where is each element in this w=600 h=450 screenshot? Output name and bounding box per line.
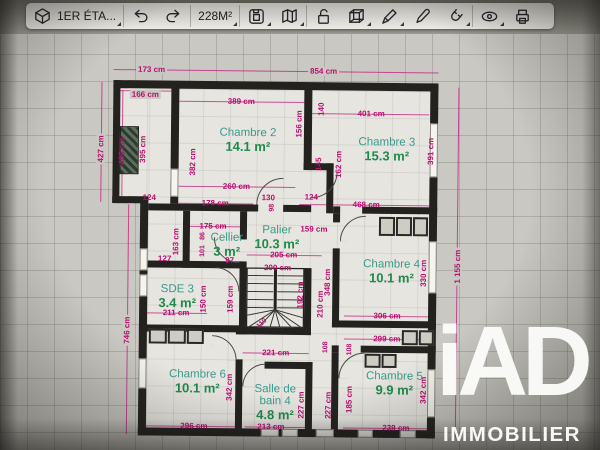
window bbox=[140, 248, 148, 270]
room-label-chambre-2: Chambre 214.1 m² bbox=[219, 127, 276, 155]
dimension-label: 210 cm bbox=[316, 291, 325, 318]
dimension-label: 130 bbox=[262, 193, 275, 202]
dimension-label: 124 bbox=[305, 193, 318, 202]
dimension-label: 166 cm bbox=[130, 90, 161, 99]
room-label-palier: Palier10.3 m² bbox=[254, 224, 299, 251]
dimension-label: 101 bbox=[199, 245, 206, 257]
room-label-chambre-5: Chambre 59.9 m² bbox=[366, 370, 423, 398]
dimension-label: 260 cm bbox=[223, 182, 250, 191]
room-label-salle-de: Salle debain 44.8 m² bbox=[254, 383, 296, 422]
dimension-label: 162 cm bbox=[334, 151, 343, 178]
map-view-button[interactable] bbox=[273, 3, 306, 29]
dimension-label: 205 cm bbox=[270, 250, 297, 259]
undo-button[interactable] bbox=[124, 3, 157, 29]
closet bbox=[379, 217, 395, 236]
save-document-icon bbox=[247, 7, 266, 26]
undo-arrow-icon bbox=[131, 7, 150, 26]
dimension-label: 227 cm bbox=[323, 392, 332, 419]
dimension-label: 391 cm bbox=[426, 138, 435, 165]
magnet-icon bbox=[446, 7, 465, 26]
dimension-label: 746 cm bbox=[122, 315, 131, 346]
dimension-label: 296 cm bbox=[180, 421, 207, 430]
view-3d-button[interactable] bbox=[340, 3, 373, 29]
dimension-label: 1 155 cm bbox=[453, 248, 462, 286]
wall-segment bbox=[305, 362, 313, 436]
dimension-label: 239 cm bbox=[382, 423, 409, 432]
floor-selector-label: 1ER ÉTA... bbox=[57, 9, 116, 23]
dimension-label: 86 bbox=[199, 232, 206, 240]
wall-segment bbox=[283, 205, 311, 212]
closet bbox=[149, 328, 167, 343]
print-button[interactable] bbox=[506, 3, 539, 29]
closet bbox=[419, 330, 434, 345]
dropdown-caret bbox=[233, 22, 237, 26]
room-label-cellier: Cellier3 m² bbox=[210, 232, 243, 259]
wall-segment bbox=[236, 327, 311, 335]
room-label-chambre-6: Chambre 610.1 m² bbox=[169, 368, 226, 396]
redo-button[interactable] bbox=[157, 3, 190, 29]
wall-segment bbox=[304, 88, 313, 170]
closet bbox=[396, 217, 412, 236]
magnet-snap-button[interactable] bbox=[439, 3, 472, 29]
dimension-label: 395 cm bbox=[138, 136, 147, 163]
closet bbox=[365, 354, 381, 368]
dimension-label: 227 cm bbox=[296, 391, 305, 418]
dropdown-caret bbox=[300, 22, 304, 26]
dimension-label: 159 cm bbox=[226, 286, 235, 313]
wall-segment bbox=[333, 213, 340, 222]
dimension-label: 405 cm bbox=[117, 138, 126, 165]
dimension-label: 192 cm bbox=[296, 281, 305, 308]
dimension-label: 124 bbox=[143, 193, 156, 202]
dimension-label: 299 cm bbox=[373, 334, 400, 343]
unlock-button[interactable] bbox=[307, 3, 340, 29]
lock-open-icon bbox=[314, 7, 333, 26]
dimension-label: 178 cm bbox=[202, 198, 229, 207]
room-label-chambre-4: Chambre 410.1 m² bbox=[363, 258, 420, 286]
redo-arrow-icon bbox=[164, 7, 183, 26]
dimension-label: 468 cm bbox=[353, 200, 380, 209]
dropdown-caret bbox=[267, 22, 271, 26]
dimension-label: 185 cm bbox=[345, 386, 354, 413]
dimension-label: 330 cm bbox=[419, 260, 428, 287]
window bbox=[170, 169, 178, 197]
dimension-label: 156 cm bbox=[294, 110, 303, 137]
room-label-sde-3: SDE 33.4 m² bbox=[158, 283, 196, 310]
closet bbox=[402, 330, 418, 345]
dropdown-caret bbox=[117, 22, 121, 26]
window bbox=[427, 369, 436, 417]
dimension-label: 175 cm bbox=[199, 221, 226, 230]
surface-area-label: 228M² bbox=[198, 9, 232, 23]
wall-segment bbox=[235, 359, 243, 435]
dimension-label: 200 cm bbox=[264, 263, 291, 272]
dimension-label: 382 cm bbox=[188, 148, 197, 175]
map-icon bbox=[280, 7, 299, 26]
draw-button[interactable] bbox=[373, 3, 406, 29]
eye-icon bbox=[480, 7, 499, 26]
photo-frame: 1ER ÉTA... 228M² bbox=[0, 0, 600, 450]
wall-segment bbox=[183, 211, 191, 268]
window bbox=[358, 430, 373, 438]
dimension-label: 108 bbox=[322, 341, 329, 353]
floorplan-canvas[interactable]: 173 cm854 cm166 cm389 cm401 cm427 cm405 … bbox=[0, 0, 600, 450]
dimension-label: 389 cm bbox=[228, 97, 255, 106]
dimension-label: 306 cm bbox=[373, 311, 400, 320]
cube-3d-icon bbox=[347, 7, 366, 26]
dimension-label: 140 bbox=[317, 102, 326, 115]
closet bbox=[413, 217, 428, 236]
wall-segment bbox=[304, 268, 312, 335]
window bbox=[138, 358, 146, 388]
room-label-chambre-3: Chambre 315.3 m² bbox=[358, 136, 415, 164]
dropdown-caret bbox=[500, 22, 504, 26]
dimension-label: 163 cm bbox=[171, 228, 180, 255]
dimension-label: 145 bbox=[314, 157, 323, 170]
dimension-label: 98 bbox=[269, 204, 276, 212]
wall-segment bbox=[361, 346, 436, 354]
floor-selector-button[interactable]: 1ER ÉTA... bbox=[26, 3, 123, 29]
wall-segment bbox=[332, 248, 340, 327]
wall-segment bbox=[332, 320, 436, 328]
visibility-button[interactable] bbox=[473, 3, 506, 29]
closet bbox=[168, 329, 186, 344]
dimension-label: 401 cm bbox=[358, 109, 385, 118]
printer-icon bbox=[513, 7, 532, 26]
dimension-label: 173 cm bbox=[136, 65, 167, 74]
dimension-label: 108 bbox=[346, 344, 353, 356]
dropdown-caret bbox=[367, 22, 371, 26]
wall-segment bbox=[333, 206, 340, 213]
dimension-label: 159 cm bbox=[300, 225, 327, 234]
dimension-label: 854 cm bbox=[308, 67, 339, 76]
window bbox=[428, 241, 437, 293]
pencil-icon bbox=[380, 7, 399, 26]
surface-area-button[interactable]: 228M² bbox=[191, 3, 239, 29]
save-document-button[interactable] bbox=[240, 3, 273, 29]
dropdown-caret bbox=[400, 22, 404, 26]
floor-box-icon bbox=[33, 7, 52, 26]
dimension-label: 127 bbox=[158, 254, 171, 263]
dimension-label: 221 cm bbox=[262, 348, 289, 357]
window bbox=[139, 274, 147, 296]
dimension-label: 213 cm bbox=[257, 422, 284, 431]
wall-segment bbox=[332, 345, 339, 352]
dimension-label: 427 cm bbox=[96, 133, 105, 164]
window bbox=[316, 429, 334, 437]
dimension-label: 150 cm bbox=[199, 285, 208, 312]
closet bbox=[187, 329, 204, 344]
dropdown-caret bbox=[466, 22, 470, 26]
pen-icon bbox=[413, 7, 432, 26]
closet bbox=[382, 354, 397, 368]
toolbar: 1ER ÉTA... 228M² bbox=[26, 3, 554, 29]
dimension-label: 342 cm bbox=[225, 374, 234, 401]
annotate-button[interactable] bbox=[406, 3, 439, 29]
